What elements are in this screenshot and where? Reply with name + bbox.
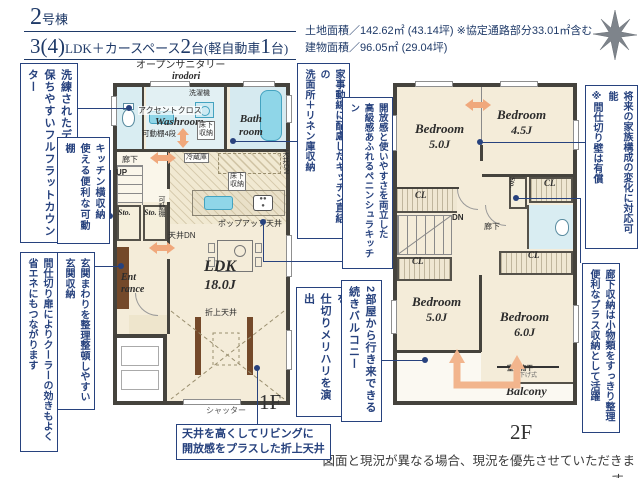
open-sanitary-label: オープンサニタリー [136,60,225,72]
stove-icon: ●●● [253,195,273,211]
bathtub-icon [260,90,282,141]
connector-dot [126,105,132,111]
window-shutter [183,399,241,405]
ldk-size: 18.0J [204,278,236,293]
balcony-u-arrow [447,345,527,395]
connector-dot [260,219,266,225]
popup-ceiling-label: ポップアップ天井 [218,219,282,228]
hallway-label-2f: 廊下 [484,222,500,231]
header-rule-1 [24,31,296,32]
car-count: 2 [181,34,192,58]
bedroom1-label: Bedroom5.0J [415,122,464,152]
window [286,235,292,277]
plan-rooms: 3(4) [30,34,65,58]
building-area: 建物面積／96.05㎡ (29.04坪) [305,39,447,55]
ldk-label: LDK18.0J [204,258,236,295]
closet-cl-1 [397,189,457,213]
bedroom1-size: 5.0J [429,137,450,151]
floor-1f-label: 1F [259,390,281,415]
disclaimer: 図面と現況が異なる場合、現況を優先させていただきます。 [300,450,635,478]
stairs-diagonal [397,215,452,255]
hallway-label-1f: 廊下 [122,155,138,164]
window [573,305,579,343]
callout-peninsula-kitchen: 開放感と使いやすさを両立した 高級感あふれるペニンシュラキッチン [342,97,393,269]
bedroom4-size: 6.0J [514,325,535,339]
wall [397,187,459,189]
toilet-icon-2f [555,219,569,236]
table-circle-icon [234,245,246,257]
building-number: 2 [30,4,42,30]
window [391,300,397,334]
sink-icon [204,196,233,210]
connector-line [516,198,580,199]
callout-hallway-storage: 廊下収納は小物類をすっきり整理 便利なプラス収納として活躍 [582,263,620,433]
sto-label-1: Sto. [118,208,131,217]
bedroom2-label: Bedroom4.5J [497,108,546,138]
kei-note: 台) [271,41,288,56]
pantry-1f [218,153,281,174]
door-arc [457,189,478,210]
underfloor-storage-tag: 床下 収納 [197,121,215,140]
partition-line [481,87,482,147]
toilet-room-2f [527,205,573,249]
connector-dot [477,139,483,145]
cl-label-3: CL [412,256,424,266]
toilet-room-1f [117,87,144,149]
movable-shelf-label: 可動棚 [157,196,165,217]
porch-step [121,370,159,390]
building-suffix: 号棟 [42,12,68,27]
toilet-icon-1f [122,109,135,127]
window [111,96,117,126]
dn-label: DN [452,213,464,222]
bedroom3-size: 5.0J [426,310,447,324]
connector-dot [254,365,260,371]
chair-icon [208,243,215,253]
movable-shelf4-label: 可動棚4段 [142,130,176,139]
land-area: 土地面積／142.62㎡ (43.14坪) ※協定通路部分33.01㎡含む [305,22,592,38]
connector-line [257,368,258,424]
kei-count: 1 [260,34,271,58]
bedroom3-label: Bedroom5.0J [412,295,461,325]
washer-label: 洗濯機 [189,90,210,98]
wall [117,149,286,152]
callout-oriage-ceiling: 天井を高くしてリビングに 開放感をプラスした折上天井 [176,424,331,460]
cl-label-2: CL [544,178,556,188]
sto-label-2: Sto. [144,208,157,217]
porch-step [121,346,159,366]
flow-arrow-vertical [176,128,190,148]
connector-line [263,261,342,262]
connector-line [110,170,111,216]
connector-dot [230,138,236,144]
shutter-label: シャッター [206,406,246,415]
wall [482,174,573,177]
wall [479,275,482,352]
bedroom2-name: Bedroom [497,107,546,122]
cl-label-1: CL [415,190,427,200]
connector-dot [118,263,124,269]
connector-line [375,360,426,361]
fridge-tag: 冷蔵庫 [184,153,209,163]
window [415,81,453,87]
oriage-ceiling-marks [169,309,286,401]
ceiling-dn-side-label: 天井DN [281,150,289,174]
plan-summary: 3(4)LDK＋カースペース2台(軽自動車1台) [30,34,288,59]
building-title: 2号棟 [30,4,68,31]
underfloor-storage-tag-2: 床下 収納 [228,172,246,191]
window [243,81,275,87]
callout-entrance-storage: 玄関まわりを整理整頓しやすい 玄関収納 [57,252,95,410]
window [286,95,292,123]
porch-area [117,334,167,401]
door-arc [135,293,158,316]
bedroom4-label: Bedroom6.0J [500,310,549,340]
flow-arrow-horizontal [150,152,176,164]
window [500,81,538,87]
oriage-label: 折上天井 [205,308,237,317]
bedroom3-name: Bedroom [412,294,461,309]
window [286,330,292,370]
callout-kitchen-side-storage: キッチン横収納 使える便利な可動棚 [57,137,110,244]
wall [480,145,483,161]
connector-dot [513,195,519,201]
bedroom4-name: Bedroom [500,309,549,324]
chair-icon [255,257,262,267]
flow-arrow-horizontal [149,242,175,254]
bedroom1-name: Bedroom [415,121,464,136]
callout-future-partition: 将来の家族構成の変化に対応可能 ※間仕切り壁は有償 [585,85,638,249]
open-sanitary-sub-label: irodori [172,71,200,83]
entrance-label: Ent rance [121,272,144,295]
genkan-floor [129,315,167,334]
sto-label-2f: Sto. [508,177,516,188]
plan-type: LDK＋カースペース [65,41,181,56]
partition-arrow [465,99,491,111]
bathroom-label: Bath room [239,113,263,138]
connector-dot [422,357,428,363]
chair-icon [255,243,262,253]
accent-cross-label: アクセントクロス [138,106,202,115]
floorplan-flyer: 2号棟 3(4)LDK＋カースペース2台(軽自動車1台) 土地面積／142.62… [0,0,640,478]
connector-line [580,198,581,263]
compass-icon [592,8,638,62]
kitchen-counter: ●●● [192,190,285,216]
callout-balcony-access: 2部屋から行き来できる 続きバルコニー [341,280,382,422]
connector-line [480,142,585,143]
ldk-name: LDK [204,258,236,275]
floor-2f-label: 2F [510,420,532,445]
connector-line [233,141,297,142]
callout-partition-door: 間仕切り扉によりクーラーの効きもよく 省エネにもつながります [20,252,58,452]
ceiling-dn-label: 天井DN [168,231,196,240]
car-note: 台(軽自動車 [191,41,260,56]
window [573,120,579,150]
up-label: UP [116,168,127,177]
cl-label-4: CL [528,250,540,260]
connector-line [263,222,264,262]
closet-cl-3 [397,257,452,281]
bedroom2-size: 4.5J [511,123,532,137]
